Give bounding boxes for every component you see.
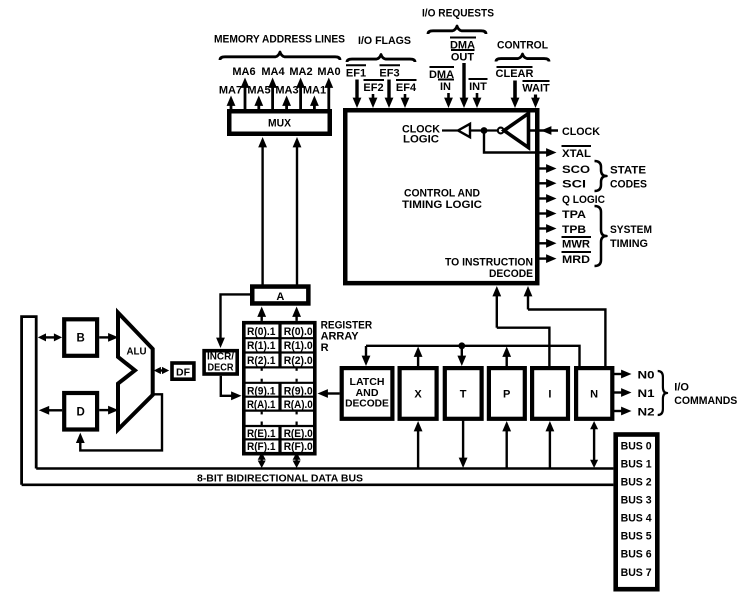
svg-text:I/O FLAGS: I/O FLAGS	[358, 35, 411, 47]
svg-text:P: P	[503, 388, 510, 400]
svg-text:N: N	[590, 388, 598, 400]
svg-text:EF2: EF2	[363, 82, 383, 94]
svg-text:MEMORY ADDRESS LINES: MEMORY ADDRESS LINES	[214, 34, 345, 46]
svg-text:R(E).1: R(E).1	[247, 428, 276, 440]
svg-text:R(0).0: R(0).0	[284, 326, 313, 338]
svg-text:INCR/: INCR/	[207, 352, 234, 363]
svg-text:R(E).0: R(E).0	[284, 428, 313, 440]
svg-text:MUX: MUX	[268, 118, 292, 130]
svg-text:DF: DF	[176, 366, 191, 378]
svg-text:N0: N0	[638, 369, 655, 381]
svg-text:XTAL: XTAL	[562, 148, 591, 160]
svg-text:EF1: EF1	[346, 68, 366, 80]
svg-text:R(1).0: R(1).0	[284, 340, 313, 352]
svg-text:I/O REQUESTS: I/O REQUESTS	[422, 8, 494, 20]
svg-text:BUS 5: BUS 5	[621, 531, 652, 543]
svg-text:AND: AND	[356, 388, 379, 399]
svg-text:BUS 4: BUS 4	[621, 513, 653, 525]
svg-text:R(F).1: R(F).1	[247, 441, 276, 453]
svg-text:MA5: MA5	[247, 85, 270, 97]
svg-text:D: D	[76, 406, 84, 418]
svg-text:CONTROL AND: CONTROL AND	[404, 188, 480, 200]
svg-text:A: A	[276, 291, 284, 303]
svg-text:B: B	[76, 333, 84, 345]
svg-text:R(1).1: R(1).1	[247, 340, 276, 352]
svg-text:R(A).0: R(A).0	[284, 399, 313, 411]
svg-text:CLEAR: CLEAR	[496, 68, 534, 80]
svg-text:MA3: MA3	[275, 85, 298, 97]
svg-text:MA1: MA1	[303, 85, 326, 97]
svg-text:BUS 2: BUS 2	[621, 477, 652, 489]
svg-text:R(0).1: R(0).1	[247, 326, 276, 338]
svg-text:Q LOGIC: Q LOGIC	[562, 194, 605, 206]
svg-text:REGISTER: REGISTER	[321, 319, 373, 331]
svg-text:DECR: DECR	[208, 363, 234, 374]
svg-text:EF4: EF4	[396, 82, 417, 94]
svg-text:MA4: MA4	[261, 66, 285, 78]
svg-text:MWR: MWR	[562, 239, 590, 251]
svg-text:MRD: MRD	[562, 254, 590, 266]
svg-text:BUS 7: BUS 7	[621, 567, 652, 579]
svg-text:I: I	[548, 388, 551, 400]
svg-text:R(2).1: R(2).1	[247, 355, 276, 367]
svg-text:TIMING LOGIC: TIMING LOGIC	[402, 199, 482, 211]
svg-text:TPA: TPA	[562, 209, 586, 221]
svg-text:I/O: I/O	[674, 382, 689, 394]
svg-text:SYSTEM: SYSTEM	[610, 224, 652, 236]
svg-text:SCI: SCI	[562, 179, 586, 191]
svg-text:SCO: SCO	[562, 164, 591, 176]
svg-text:DECODE: DECODE	[489, 268, 533, 280]
svg-text:EF3: EF3	[379, 68, 399, 80]
svg-text:N2: N2	[638, 406, 655, 418]
svg-text:CLOCK: CLOCK	[562, 126, 600, 138]
svg-text:BUS 0: BUS 0	[621, 441, 652, 453]
svg-text:MA6: MA6	[232, 66, 255, 78]
svg-text:TO INSTRUCTION: TO INSTRUCTION	[445, 257, 533, 269]
svg-text:WAIT: WAIT	[522, 82, 550, 94]
svg-text:STATE: STATE	[610, 164, 646, 176]
svg-text:BUS 6: BUS 6	[621, 549, 652, 561]
svg-text:R(9).1: R(9).1	[247, 385, 276, 397]
svg-text:ARRAY: ARRAY	[321, 331, 360, 343]
svg-text:CODES: CODES	[610, 179, 647, 191]
svg-text:R: R	[321, 342, 329, 354]
svg-text:MA2: MA2	[289, 66, 312, 78]
svg-text:TIMING: TIMING	[610, 238, 648, 250]
svg-text:8-BIT BIDIRECTIONAL DATA BUS: 8-BIT BIDIRECTIONAL DATA BUS	[197, 473, 363, 485]
svg-text:BUS 3: BUS 3	[621, 495, 652, 507]
svg-text:N1: N1	[638, 388, 655, 400]
svg-text:MA0: MA0	[317, 66, 340, 78]
svg-text:ALU: ALU	[127, 346, 147, 358]
svg-text:INT: INT	[469, 81, 487, 93]
svg-text:COMMANDS: COMMANDS	[674, 395, 737, 407]
svg-text:CONTROL: CONTROL	[497, 40, 548, 52]
svg-text:T: T	[460, 388, 467, 400]
svg-text:DECODE: DECODE	[345, 398, 389, 409]
svg-text:MA7: MA7	[219, 85, 242, 97]
svg-text:LATCH: LATCH	[350, 377, 385, 388]
svg-text:OUT: OUT	[451, 52, 475, 64]
svg-text:R(9).0: R(9).0	[284, 385, 313, 397]
svg-text:IN: IN	[440, 81, 451, 93]
svg-text:R(F).0: R(F).0	[284, 441, 313, 453]
svg-text:X: X	[414, 388, 422, 400]
svg-text:TPB: TPB	[562, 224, 586, 236]
svg-text:R(2).0: R(2).0	[284, 355, 313, 367]
svg-text:BUS 1: BUS 1	[621, 459, 652, 471]
svg-text:LOGIC: LOGIC	[403, 134, 439, 146]
svg-text:R(A).1: R(A).1	[247, 399, 276, 411]
